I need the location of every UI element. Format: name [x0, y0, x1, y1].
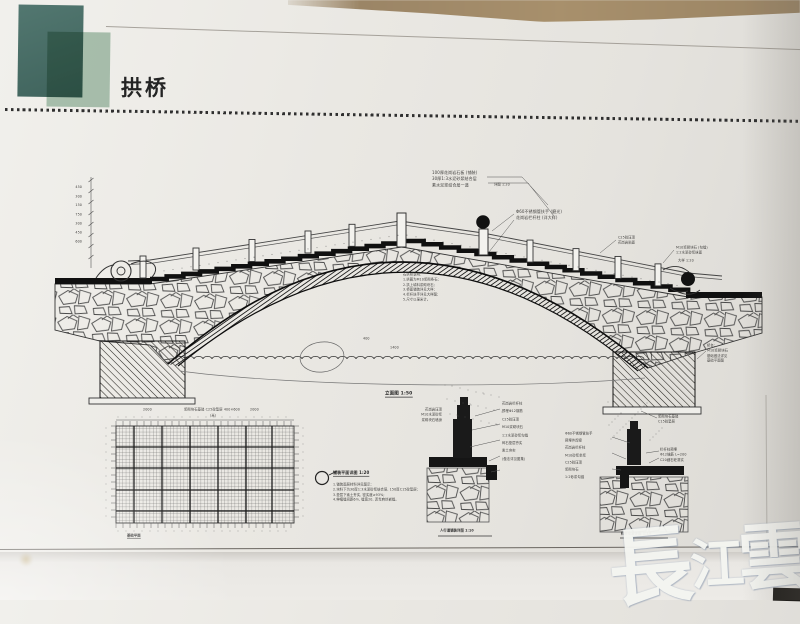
watermark-char: 雲 [734, 496, 800, 606]
annotation-line: 碎石垫层夯实 [502, 440, 528, 448]
dim-grid-right: 2000 [250, 407, 259, 412]
left-abutment [89, 341, 195, 404]
annotation-line: 1:2水泥砂浆抹面 [676, 250, 708, 255]
foundation-grid-plan [111, 420, 299, 528]
annotation-line: (做法详见图集) [502, 455, 528, 463]
label-elevation: 立面图 1:50 [385, 390, 412, 397]
crown-post [479, 229, 488, 255]
annotation-line: C25砼压顶 [502, 416, 528, 424]
annotation-line: 基础平面图 [707, 358, 728, 363]
dim-crown-b: 1400 [390, 345, 399, 350]
annotation-rd-right: 栏杆柱预埋Φ12锚筋 L=200C20细石砼灌实 [660, 447, 687, 462]
ball-finial [476, 215, 490, 229]
paper-stain [18, 553, 34, 566]
annotation-line: 450 [71, 183, 82, 192]
left-dimension-line [89, 177, 94, 268]
annotation-line: 150 [71, 201, 82, 210]
annotation-under-arch: 石拱桥说明：1.拱圈为M10浆砌条石;2.拱上填料浆砌块石;3.桥面铺装详见大样… [403, 272, 439, 303]
annotation-line: 4.伸缩缝间距6m, 缝宽20, 沥青麻丝嵌缝。 [333, 497, 418, 502]
annotation-line: 1:2砂浆勾缝 [565, 474, 593, 481]
annotation-right-mid-b: M10浆砌块石 (勾缝)1:2水泥砂浆抹面 [676, 245, 708, 255]
annotation-line: C25砼压顶 [565, 459, 593, 466]
crown-post [397, 213, 406, 247]
right-ball-finial [681, 272, 695, 286]
annotation-line: 花岗岩栏杆柱 [565, 445, 593, 452]
annotation-line: 素土夯实 [502, 447, 528, 455]
dim-left-stack: 450300150750300450600 [71, 183, 82, 247]
label-grid-unit: (米) [210, 413, 216, 418]
annotation-line: 600 [71, 237, 82, 246]
annotation-detail-ref2: 大样 1:20 [678, 258, 694, 263]
annotation-right-mid-a: C25砼压顶花岗岩贴面 [618, 235, 635, 245]
annotation-line: 浆砌块石 [565, 466, 593, 473]
dim-grid-left: 2000 [143, 407, 152, 412]
annotation-line: 450 [71, 228, 82, 237]
annotation-callout-notes: 1.铺装面层材料详见图示;2.块料下为30厚1:3水泥砂浆结合层, 150厚C1… [333, 482, 418, 502]
annotation-line: M10浆砌块石 [502, 424, 528, 432]
annotation-line: 预埋件焊接 [565, 437, 593, 444]
dim-crown-a: 400 [363, 336, 370, 341]
annotation-line: 花岗岩栏杆柱 [502, 400, 528, 408]
annotation-line: 花岗岩贴面 [618, 240, 635, 245]
label-grid-plan: 基础平面 [127, 533, 141, 538]
annotation-line: C15砼垫层 [658, 419, 678, 424]
annotation-line: 素水泥浆结合层一道 [432, 182, 477, 188]
annotation-mid-left: 花岗岩压顶M10水泥砂浆浆砌块石墙身 [408, 407, 442, 422]
annotation-line: 5.尺寸以毫米计。 [403, 298, 439, 303]
annotation-footing-note: 浆砌块石基础C15砼垫层 [658, 414, 678, 424]
label-walkway-detail: 人行道铺装详图 1:10 [440, 528, 474, 533]
annotation-detail-ref: 详图 1:20 [494, 182, 510, 187]
photographed-drawing-page: { "page": { "title": "拱桥" }, "watermark"… [0, 0, 800, 600]
annotation-line: 30厚1:3水泥砂浆结合层 [432, 176, 477, 182]
dim-grid-mid: 浆砌块石基础 C25砼垫层 400×600 [184, 407, 240, 412]
annotation-abutment-note: 桥台:M10浆砌块石基础做法详见基础平面图 [707, 343, 728, 363]
annotation-line: 1:2水泥砂浆勾缝 [502, 432, 528, 440]
annotation-line: 300 [71, 192, 82, 201]
annotation-line: 浆砌块石墙身 [408, 417, 442, 422]
label-callout-title: 铺装平面详图 1:20 [333, 470, 369, 476]
watermark-char: 長 [603, 497, 697, 624]
annotation-line: Φ60不锈钢管扶手 [565, 430, 593, 437]
annotation-top-paving: 100厚花岗岩石板 (铺装)30厚1:3水泥砂浆结合层素水泥浆结合层一道 [432, 170, 477, 188]
annotation-line: C20细石砼灌实 [660, 457, 687, 462]
annotation-line: 花岗岩栏杆柱 (详大样) [516, 215, 562, 221]
waterline-ground [176, 339, 645, 384]
annotation-mid-right: 花岗岩栏杆柱预埋Φ12钢筋C25砼压顶M10浆砌块石1:2水泥砂浆勾缝碎石垫层夯… [502, 400, 528, 463]
annotation-line: 300 [71, 219, 82, 228]
annotation-line: 预埋Φ12钢筋 [502, 408, 528, 416]
annotation-rd-left: Φ60不锈钢管扶手预埋件焊接花岗岩栏杆柱M10砂浆坐浆C25砼压顶浆砌块石1:2… [565, 430, 593, 481]
annotation-line: M10砂浆坐浆 [565, 452, 593, 459]
watermark-changjiangyun: 長 江 雲 [604, 494, 800, 604]
annotation-line: 750 [71, 210, 82, 219]
right-abutment [603, 352, 701, 414]
annotation-right-upper: Φ60不锈钢管扶手 (磨光)花岗岩栏杆柱 (详大样) [516, 209, 562, 221]
